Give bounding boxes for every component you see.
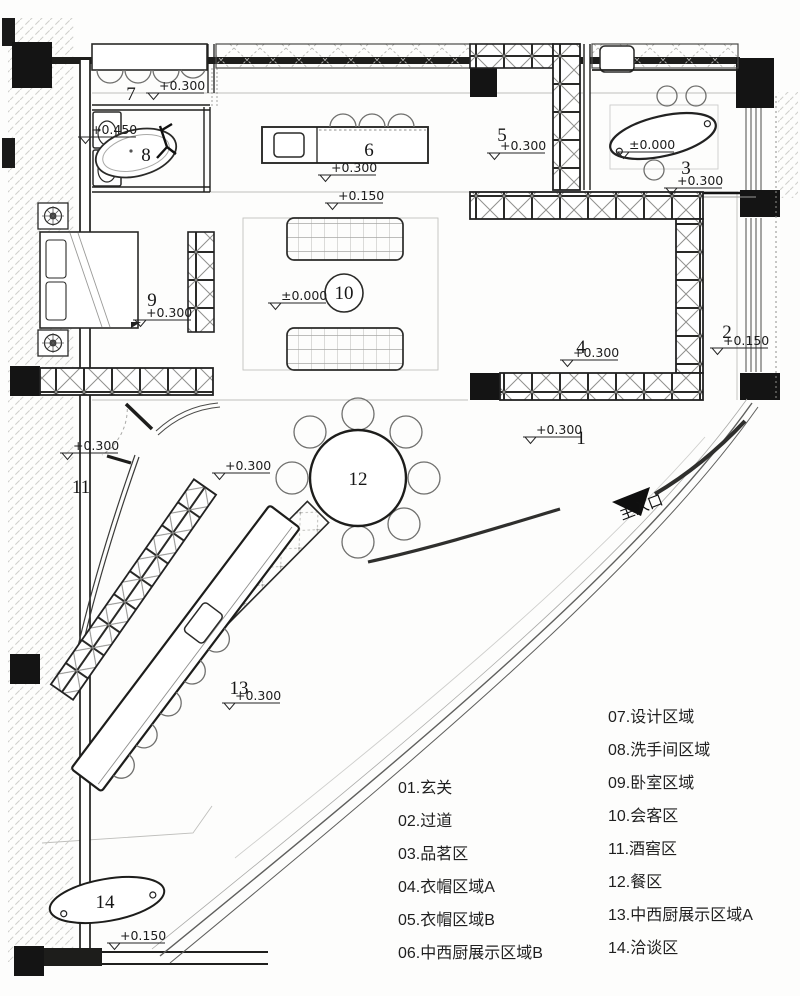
door-leaf bbox=[126, 404, 152, 429]
island-b bbox=[262, 114, 428, 163]
elevation-marker-living-step: +0.150 bbox=[325, 188, 384, 210]
wardrobe-column bbox=[553, 44, 580, 190]
area-label-6: 6 bbox=[364, 140, 374, 161]
dining-chair bbox=[408, 462, 440, 494]
svg-text:+0.300: +0.300 bbox=[235, 688, 281, 703]
chair bbox=[97, 70, 123, 83]
elevation-marker-cloak-b: +0.300 bbox=[487, 138, 546, 160]
pillow bbox=[46, 240, 66, 278]
stool bbox=[388, 114, 414, 127]
nightstand bbox=[38, 203, 68, 229]
legend-item: 05.衣帽区域B bbox=[398, 911, 495, 929]
edge-column bbox=[2, 18, 15, 46]
cloak-a bbox=[470, 192, 703, 400]
area-label-7: 7 bbox=[126, 84, 136, 105]
elevation-marker-wine-door: +0.300 bbox=[212, 458, 271, 480]
elevation-marker-cloak-a: +0.300 bbox=[560, 345, 619, 367]
svg-text:+0.300: +0.300 bbox=[225, 458, 271, 473]
floor-plan-svg: 主入口 7 8 6 5 3 9 10 4 2 11 12 1 13 14 +0.… bbox=[0, 0, 800, 996]
column bbox=[736, 58, 774, 108]
svg-text:+0.300: +0.300 bbox=[500, 138, 546, 153]
wardrobe-xboxes bbox=[470, 192, 703, 219]
elevation-marker-meeting: +0.150 bbox=[107, 928, 166, 950]
svg-text:+0.300: +0.300 bbox=[573, 345, 619, 360]
area-label-11: 11 bbox=[72, 477, 90, 498]
legend-item: 09.卧室区域 bbox=[608, 774, 694, 792]
cabinet-xboxes bbox=[470, 44, 553, 68]
column bbox=[12, 42, 52, 88]
floor-plan-page: 主入口 7 8 6 5 3 9 10 4 2 11 12 1 13 14 +0.… bbox=[0, 0, 800, 996]
wardrobe-xboxes bbox=[676, 219, 703, 373]
legend-item: 02.过道 bbox=[398, 812, 452, 830]
svg-text:+0.300: +0.300 bbox=[331, 160, 377, 175]
sliding-door bbox=[655, 421, 745, 494]
elevation-marker-design: +0.300 bbox=[146, 78, 205, 100]
svg-text:±0.000: ±0.000 bbox=[281, 288, 327, 303]
column bbox=[740, 373, 780, 400]
svg-text:+0.150: +0.150 bbox=[338, 188, 384, 203]
sink bbox=[274, 133, 304, 157]
stool bbox=[359, 114, 385, 127]
wardrobe-xboxes bbox=[500, 373, 703, 400]
area-label-12: 12 bbox=[349, 469, 368, 490]
elevation-marker-corridor: +0.150 bbox=[710, 333, 769, 355]
elevation-marker-hall: +0.300 bbox=[523, 422, 582, 444]
edge-column bbox=[2, 138, 15, 168]
stool bbox=[686, 86, 706, 106]
sink bbox=[600, 46, 634, 72]
legend: 01.玄关 02.过道 03.品茗区 04.衣帽区域A 05.衣帽区域B 06.… bbox=[398, 708, 753, 962]
elevation-marker-living: ±0.000 bbox=[268, 288, 327, 310]
cabinet-band bbox=[216, 44, 470, 68]
svg-text:+0.450: +0.450 bbox=[91, 122, 137, 137]
legend-item: 14.洽谈区 bbox=[608, 939, 678, 957]
legend-item: 13.中西厨展示区域A bbox=[608, 906, 753, 924]
svg-text:+0.300: +0.300 bbox=[73, 438, 119, 453]
chair bbox=[181, 70, 205, 78]
svg-text:+0.300: +0.300 bbox=[159, 78, 205, 93]
svg-text:+0.300: +0.300 bbox=[536, 422, 582, 437]
stool bbox=[644, 160, 664, 180]
legend-item: 08.洗手间区域 bbox=[608, 741, 710, 759]
wall-bottom-corner bbox=[40, 948, 102, 966]
nightstand bbox=[38, 330, 68, 356]
svg-text:+0.150: +0.150 bbox=[120, 928, 166, 943]
area-label-8: 8 bbox=[141, 145, 151, 166]
dining-chair bbox=[294, 416, 326, 448]
dining-chair bbox=[342, 398, 374, 430]
area-label-10: 10 bbox=[335, 283, 354, 304]
legend-item: 04.衣帽区域A bbox=[398, 878, 495, 896]
svg-text:+0.150: +0.150 bbox=[723, 333, 769, 348]
pillow bbox=[46, 282, 66, 320]
chair bbox=[125, 70, 151, 83]
dining-chair bbox=[342, 526, 374, 558]
curved-rail bbox=[156, 403, 220, 435]
wardrobe-xboxes bbox=[40, 368, 213, 395]
sofa bbox=[287, 328, 403, 370]
column bbox=[470, 373, 500, 400]
column bbox=[10, 366, 40, 396]
legend-item: 07.设计区域 bbox=[608, 708, 694, 726]
exterior-hatch-right bbox=[778, 92, 798, 198]
svg-text:+0.300: +0.300 bbox=[146, 305, 192, 320]
legend-item: 10.会客区 bbox=[608, 807, 678, 825]
column bbox=[14, 946, 44, 976]
area-label-14: 14 bbox=[96, 892, 116, 913]
legend-item: 11.酒窖区 bbox=[608, 840, 677, 858]
legend-item: 03.品茗区 bbox=[398, 845, 468, 863]
svg-text:+0.300: +0.300 bbox=[677, 173, 723, 188]
dining-chair bbox=[276, 462, 308, 494]
legend-item: 06.中西厨展示区域B bbox=[398, 944, 543, 962]
stool bbox=[657, 86, 677, 106]
elevation-marker-bedroom: +0.300 bbox=[133, 305, 192, 327]
stool bbox=[330, 114, 356, 127]
legend-item: 01.玄关 bbox=[398, 779, 452, 797]
window-right bbox=[746, 96, 776, 400]
sofa bbox=[287, 218, 403, 260]
door-leaf bbox=[107, 456, 131, 463]
dining-chair bbox=[388, 508, 420, 540]
column bbox=[10, 654, 40, 684]
dining-chair bbox=[390, 416, 422, 448]
svg-text:±0.000: ±0.000 bbox=[629, 137, 675, 152]
design-desk bbox=[92, 44, 207, 70]
legend-item: 12.餐区 bbox=[608, 873, 662, 891]
sliding-door bbox=[368, 509, 560, 562]
exterior-hatch-left bbox=[8, 18, 74, 962]
